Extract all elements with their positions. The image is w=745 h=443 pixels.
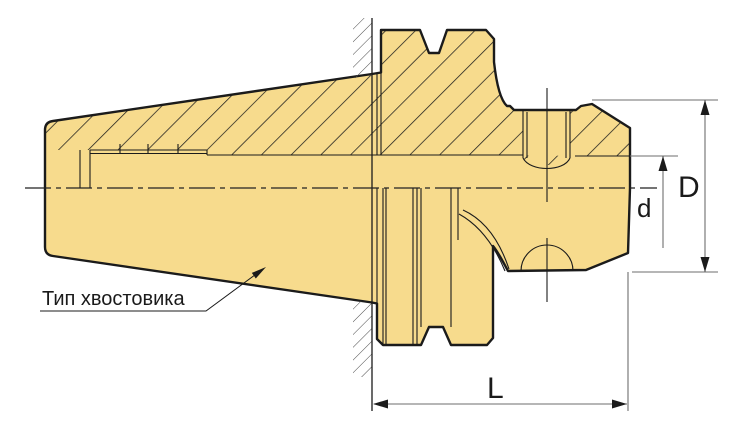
arrow-L-left [373, 400, 388, 409]
section-hatch-flange [370, 20, 640, 165]
technical-drawing-page: D d L Тип хвостовика [0, 0, 745, 443]
label-dimension-d: d [637, 193, 651, 223]
arrow-d-top [659, 156, 668, 171]
wall-hatch-top [353, 18, 372, 78]
tool-holder-drawing: D d L Тип хвостовика [0, 0, 745, 443]
arrow-D-top [701, 100, 710, 115]
label-dimension-L: L [487, 372, 504, 405]
label-dimension-D: D [678, 171, 700, 204]
arrow-L-right [612, 400, 627, 409]
label-shank-type: Тип хвостовика [42, 288, 185, 310]
arrow-D-bottom [701, 257, 710, 272]
wall-hatch-bottom [353, 301, 372, 377]
